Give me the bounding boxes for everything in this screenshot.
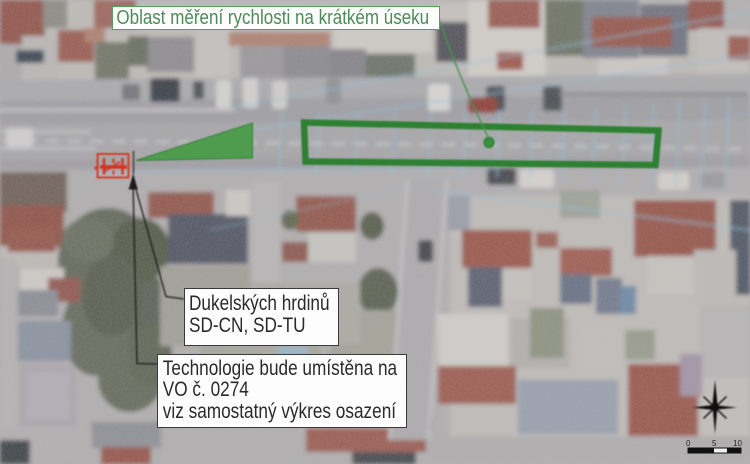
svg-text:10: 10	[733, 439, 742, 448]
svg-text:5: 5	[712, 439, 717, 448]
svg-text:0: 0	[686, 439, 691, 448]
